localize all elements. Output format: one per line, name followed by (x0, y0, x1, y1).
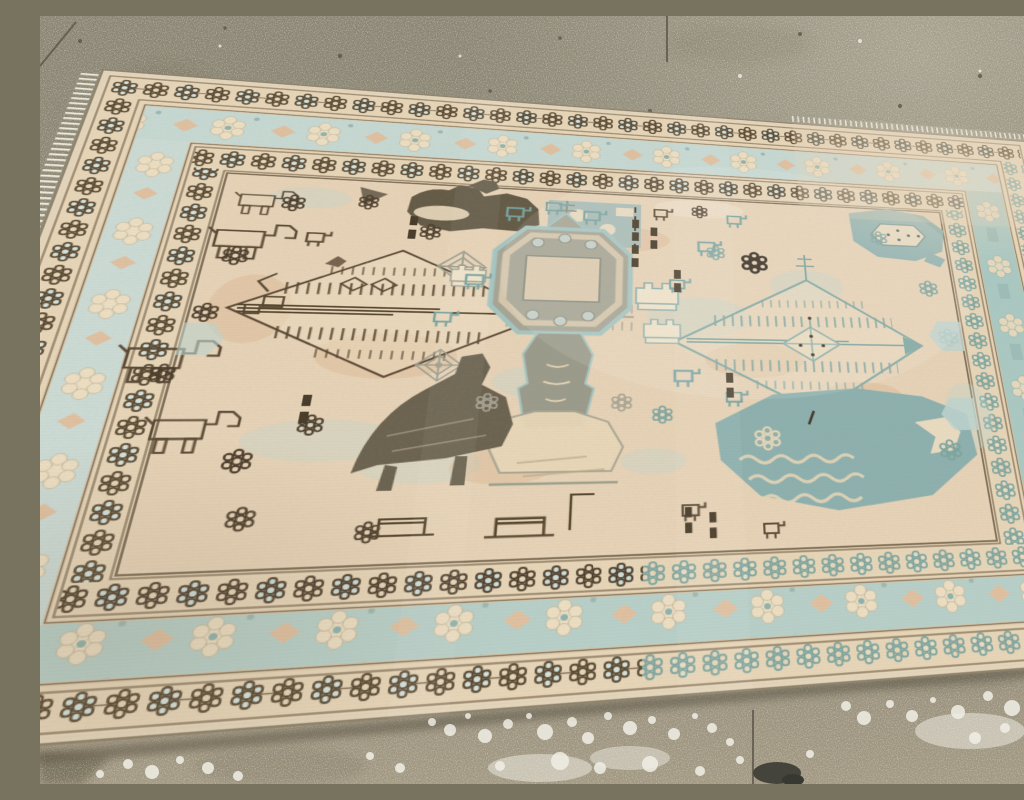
rug-surface (40, 58, 1024, 784)
pile-noise (40, 58, 1024, 784)
rug (40, 69, 1024, 762)
rug-photograph: Antique handwoven Persian tribal rug wit… (40, 16, 1024, 784)
